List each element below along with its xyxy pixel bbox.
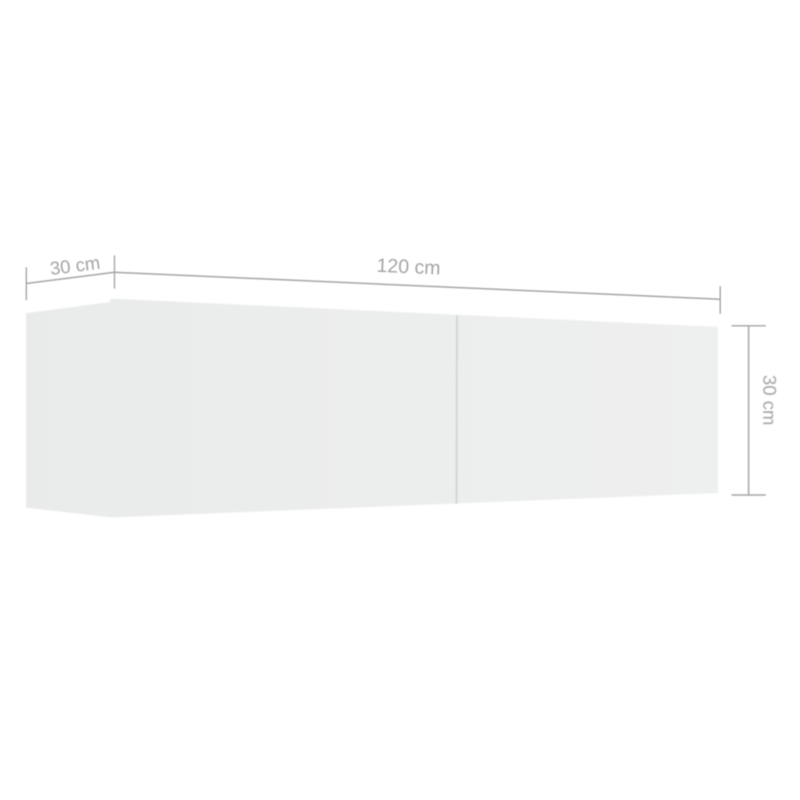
svg-text:120 cm: 120 cm: [376, 255, 441, 280]
svg-text:30 cm: 30 cm: [759, 375, 780, 425]
